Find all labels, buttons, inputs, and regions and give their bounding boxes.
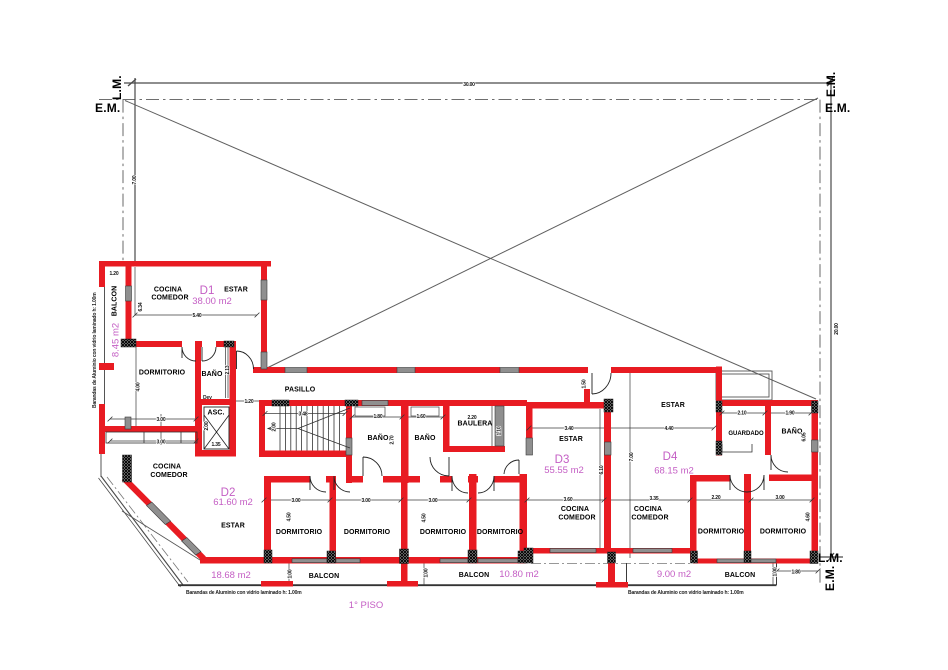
svg-text:PASILLO: PASILLO <box>285 387 316 394</box>
svg-text:3.00: 3.00 <box>292 498 301 504</box>
svg-text:2.70: 2.70 <box>390 435 396 444</box>
svg-text:2.20: 2.20 <box>712 495 721 501</box>
svg-text:1.20: 1.20 <box>110 271 119 277</box>
svg-text:COMEDOR: COMEDOR <box>631 515 668 522</box>
svg-text:1.00: 1.00 <box>288 569 294 578</box>
svg-text:DORMITORIO: DORMITORIO <box>698 529 745 536</box>
svg-text:E.M.: E.M. <box>95 101 120 115</box>
svg-text:3.48: 3.48 <box>299 412 308 418</box>
svg-text:BALCON: BALCON <box>309 573 340 580</box>
svg-text:3.60: 3.60 <box>564 497 573 503</box>
svg-text:3.35: 3.35 <box>650 496 659 502</box>
svg-text:3.40: 3.40 <box>565 426 574 432</box>
svg-text:2.00: 2.00 <box>272 422 278 431</box>
svg-text:L.M.: L.M. <box>110 75 124 100</box>
svg-text:1.80: 1.80 <box>374 414 383 420</box>
svg-text:6.34: 6.34 <box>138 302 144 311</box>
svg-text:6.10: 6.10 <box>599 465 605 474</box>
svg-text:1.00: 1.00 <box>773 567 779 576</box>
svg-text:E.M.: E.M. <box>825 101 850 115</box>
svg-text:1.60: 1.60 <box>417 414 426 420</box>
svg-text:55.55 m2: 55.55 m2 <box>544 465 584 476</box>
svg-text:COCINA: COCINA <box>634 506 662 513</box>
svg-text:DORMITORIO: DORMITORIO <box>139 370 186 377</box>
svg-text:DORMITORIO: DORMITORIO <box>276 529 323 536</box>
svg-text:Barandas de Aluminio con vidri: Barandas de Aluminio con vidrio laminado… <box>186 590 302 596</box>
svg-text:1.10: 1.10 <box>497 426 503 435</box>
svg-text:30.00: 30.00 <box>463 82 475 88</box>
svg-text:BAÑO: BAÑO <box>781 427 802 436</box>
svg-text:4.60: 4.60 <box>806 512 812 521</box>
svg-text:1° PISO: 1° PISO <box>349 600 383 611</box>
svg-text:9.00 m2: 9.00 m2 <box>657 569 691 580</box>
svg-text:E.M.: E.M. <box>824 72 838 97</box>
svg-text:COCINA: COCINA <box>153 464 181 471</box>
svg-text:6.05: 6.05 <box>802 432 808 441</box>
svg-text:3.00: 3.00 <box>362 498 371 504</box>
svg-text:BALCON: BALCON <box>459 572 490 579</box>
svg-text:2.10: 2.10 <box>738 411 747 417</box>
svg-text:L.M.: L.M. <box>818 551 843 565</box>
svg-text:ESTAR: ESTAR <box>224 287 248 294</box>
svg-text:BAÑO: BAÑO <box>367 433 388 442</box>
svg-text:10.80 m2: 10.80 m2 <box>499 569 539 580</box>
svg-text:D4: D4 <box>663 451 678 463</box>
svg-text:COMEDOR: COMEDOR <box>150 472 187 479</box>
svg-text:2.20: 2.20 <box>468 415 477 421</box>
svg-text:1.00: 1.00 <box>424 568 430 577</box>
svg-text:DORMITORIO: DORMITORIO <box>760 529 807 536</box>
svg-text:61.60 m2: 61.60 m2 <box>213 497 253 508</box>
svg-text:ASC.: ASC. <box>207 410 224 417</box>
svg-text:20.00: 20.00 <box>834 323 840 335</box>
svg-text:DORMITORIO: DORMITORIO <box>477 529 524 536</box>
svg-text:8.45 m2: 8.45 m2 <box>111 323 122 357</box>
svg-text:ESTAR: ESTAR <box>559 436 583 443</box>
svg-text:4.50: 4.50 <box>422 513 428 522</box>
svg-text:1.35: 1.35 <box>212 442 221 448</box>
svg-text:1.80: 1.80 <box>792 570 801 576</box>
svg-text:BAULERA: BAULERA <box>458 421 493 428</box>
svg-text:38.00 m2: 38.00 m2 <box>192 296 232 307</box>
svg-text:ESTAR: ESTAR <box>661 402 685 409</box>
svg-text:BAÑO: BAÑO <box>414 433 435 442</box>
svg-text:1.20: 1.20 <box>245 399 254 405</box>
svg-text:COMEDOR: COMEDOR <box>151 295 188 302</box>
svg-text:BAÑO: BAÑO <box>201 369 222 378</box>
svg-text:3.00: 3.00 <box>157 440 166 446</box>
svg-text:18.68 m2: 18.68 m2 <box>211 570 251 581</box>
svg-text:7.00: 7.00 <box>132 175 138 184</box>
svg-text:BALCON: BALCON <box>725 572 756 579</box>
svg-text:DORMITORIO: DORMITORIO <box>420 529 467 536</box>
svg-text:7.00: 7.00 <box>629 452 635 461</box>
svg-text:BALCON: BALCON <box>112 286 119 317</box>
svg-text:3.00: 3.00 <box>776 495 785 501</box>
svg-text:COMEDOR: COMEDOR <box>558 515 595 522</box>
svg-text:4.40: 4.40 <box>665 426 674 432</box>
svg-text:3.00: 3.00 <box>157 417 166 423</box>
svg-text:COCINA: COCINA <box>154 287 182 294</box>
svg-text:68.15 m2: 68.15 m2 <box>654 466 694 477</box>
svg-text:2.13: 2.13 <box>225 365 231 374</box>
svg-text:4.00: 4.00 <box>136 382 142 391</box>
svg-text:E.M.: E.M. <box>823 566 837 591</box>
svg-text:1.90: 1.90 <box>786 411 795 417</box>
svg-text:ESTAR: ESTAR <box>221 523 245 530</box>
svg-text:1.50: 1.50 <box>582 379 588 388</box>
svg-text:COCINA: COCINA <box>561 506 589 513</box>
svg-text:GUARDADO: GUARDADO <box>728 431 764 437</box>
svg-text:3.00: 3.00 <box>429 498 438 504</box>
svg-text:DORMITORIO: DORMITORIO <box>344 529 391 536</box>
svg-text:Barandas de Aluminio con vidri: Barandas de Aluminio con vidrio laminado… <box>628 590 744 596</box>
svg-text:Barandas de Aluminio con vidri: Barandas de Aluminio con vidrio laminado… <box>92 292 98 408</box>
svg-text:5.40: 5.40 <box>193 313 202 319</box>
svg-text:Dev: Dev <box>203 395 212 401</box>
svg-text:2.00: 2.00 <box>204 421 210 430</box>
svg-text:4.50: 4.50 <box>287 512 293 521</box>
